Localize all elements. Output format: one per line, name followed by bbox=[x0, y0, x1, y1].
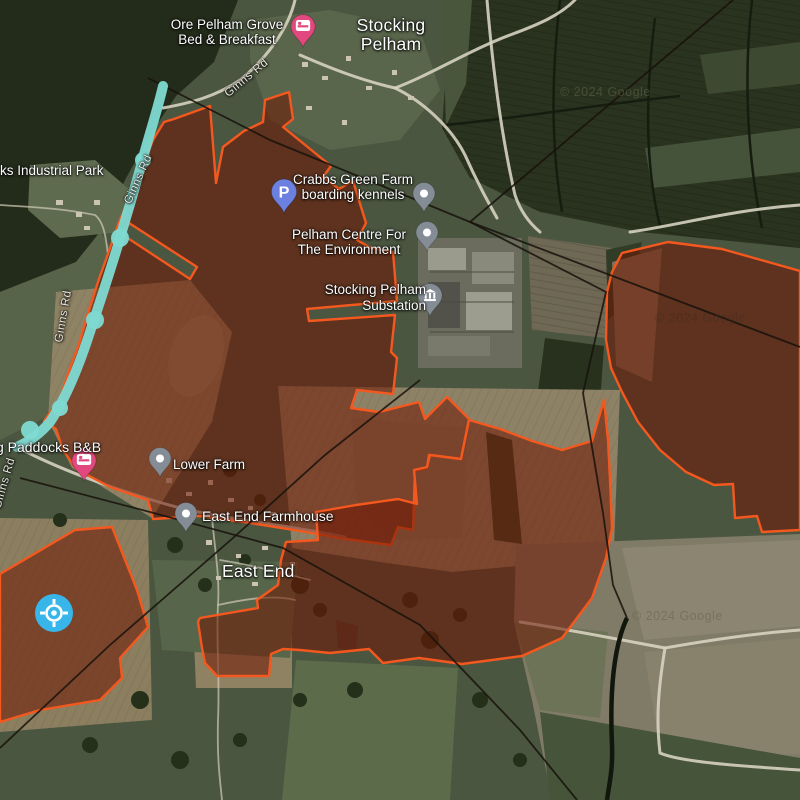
poi-label-industrial-park[interactable]: ks Industrial Park bbox=[0, 163, 104, 178]
location-marker bbox=[35, 594, 73, 632]
poi-label-paddocks-bnb[interactable]: g Paddocks B&B bbox=[0, 440, 101, 455]
overlay-parcel-main[interactable] bbox=[44, 92, 469, 545]
poi-label-ore-pelham-bnb[interactable]: Ore Pelham Grove Bed & Breakfast bbox=[160, 17, 294, 47]
poi-label-east-end-farmhouse[interactable]: East End Farmhouse bbox=[202, 509, 334, 524]
east-end-farmhouse-pin[interactable] bbox=[175, 503, 197, 533]
overlay-parcel-southwest[interactable] bbox=[0, 527, 148, 722]
google-attribution-watermark: © 2024 Google bbox=[655, 311, 746, 325]
poi-label-lower-farm[interactable]: Lower Farm bbox=[173, 457, 245, 472]
map-canvas[interactable]: P bbox=[0, 0, 800, 800]
map-overlays: P bbox=[0, 0, 800, 800]
pelham-centre-pin[interactable] bbox=[416, 222, 438, 252]
poi-label-crabbs-green[interactable]: Crabbs Green Farm boarding kennels bbox=[285, 172, 421, 202]
bed-and-breakfast-pin-north[interactable] bbox=[291, 15, 315, 47]
poi-label-pelham-centre[interactable]: Pelham Centre For The Environment bbox=[282, 227, 416, 257]
google-attribution-watermark: © 2024 Google bbox=[560, 85, 651, 99]
poi-label-substation[interactable]: Stocking Pelham Substation bbox=[294, 282, 426, 313]
town-label-east-end[interactable]: East End bbox=[222, 562, 295, 581]
town-label-stocking-pelham[interactable]: Stocking Pelham bbox=[345, 16, 437, 54]
google-attribution-watermark: © 2024 Google bbox=[632, 609, 723, 623]
